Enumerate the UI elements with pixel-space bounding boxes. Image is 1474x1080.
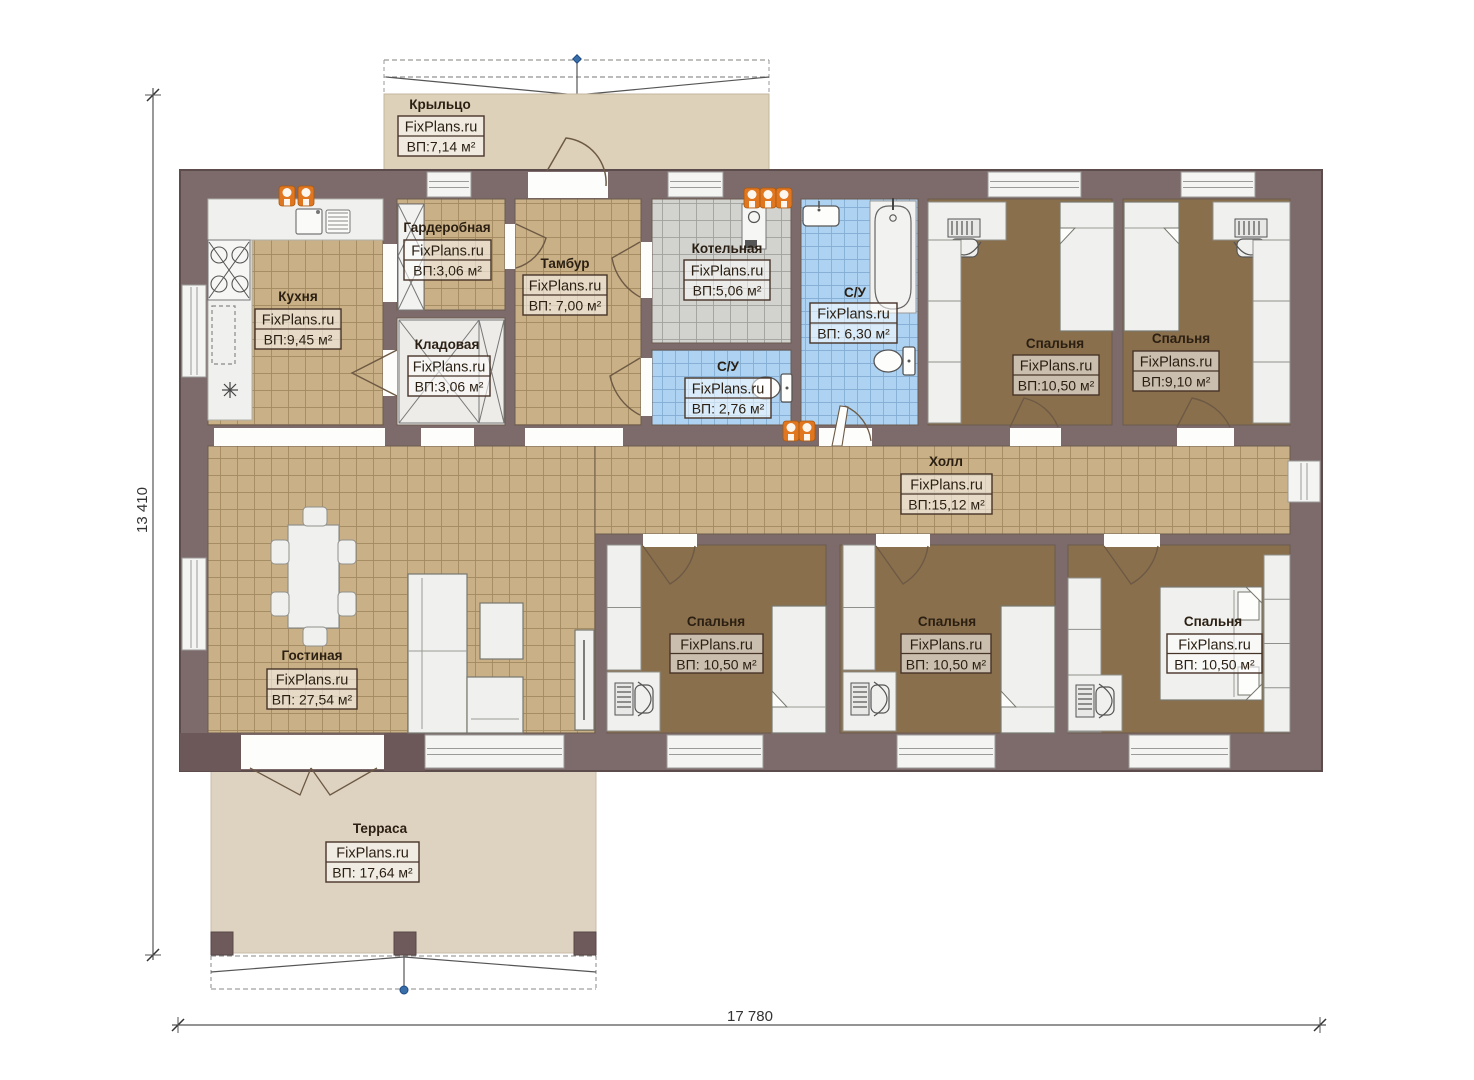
svg-text:FixPlans.ru: FixPlans.ru [692,382,765,398]
svg-text:ВП:9,10 м²: ВП:9,10 м² [1142,374,1211,390]
svg-text:FixPlans.ru: FixPlans.ru [529,279,602,295]
svg-text:FixPlans.ru: FixPlans.ru [1178,638,1251,654]
svg-text:FixPlans.ru: FixPlans.ru [262,313,335,329]
svg-text:С/У: С/У [717,359,740,374]
svg-text:Гостиная: Гостиная [281,648,342,663]
svg-text:ВП: 6,30 м²: ВП: 6,30 м² [817,326,890,342]
svg-text:FixPlans.ru: FixPlans.ru [1020,359,1093,375]
svg-text:FixPlans.ru: FixPlans.ru [405,120,478,136]
svg-text:FixPlans.ru: FixPlans.ru [680,638,753,654]
svg-text:FixPlans.ru: FixPlans.ru [817,307,890,323]
svg-text:ВП:3,06 м²: ВП:3,06 м² [413,263,482,279]
svg-text:FixPlans.ru: FixPlans.ru [691,264,764,280]
svg-text:FixPlans.ru: FixPlans.ru [1140,355,1213,371]
svg-text:ВП:5,06 м²: ВП:5,06 м² [693,283,762,299]
svg-text:ВП: 17,64 м²: ВП: 17,64 м² [332,865,413,881]
svg-text:ВП: 10,50 м²: ВП: 10,50 м² [906,657,987,673]
svg-text:ВП:10,50 м²: ВП:10,50 м² [1018,378,1095,394]
svg-text:ВП: 10,50 м²: ВП: 10,50 м² [1174,657,1255,673]
svg-text:FixPlans.ru: FixPlans.ru [910,478,983,494]
svg-text:С/У: С/У [844,285,867,300]
svg-text:Крыльцо: Крыльцо [409,97,470,112]
svg-text:FixPlans.ru: FixPlans.ru [910,638,983,654]
svg-text:Тамбур: Тамбур [541,256,590,271]
svg-text:FixPlans.ru: FixPlans.ru [336,846,409,862]
svg-text:Холл: Холл [929,454,963,469]
svg-text:Кухня: Кухня [278,289,317,304]
svg-text:Спальня: Спальня [1026,336,1084,351]
svg-text:Кладовая: Кладовая [415,337,480,352]
svg-text:ВП: 10,50 м²: ВП: 10,50 м² [676,657,757,673]
svg-text:ВП:3,06 м²: ВП:3,06 м² [415,379,484,395]
svg-text:ВП:9,45 м²: ВП:9,45 м² [264,332,333,348]
svg-text:FixPlans.ru: FixPlans.ru [411,244,484,260]
svg-text:ВП:15,12 м²: ВП:15,12 м² [908,497,985,513]
svg-text:Спальня: Спальня [1152,331,1210,346]
svg-text:13 410: 13 410 [134,487,151,533]
svg-text:Терраса: Терраса [353,821,408,836]
svg-text:Котельная: Котельная [692,241,763,256]
svg-text:17 780: 17 780 [727,1008,773,1025]
svg-text:ВП: 27,54 м²: ВП: 27,54 м² [272,692,353,708]
svg-text:ВП:7,14 м²: ВП:7,14 м² [407,139,476,155]
svg-text:FixPlans.ru: FixPlans.ru [276,673,349,689]
svg-text:Спальня: Спальня [918,614,976,629]
svg-text:Гардеробная: Гардеробная [403,220,490,235]
svg-text:Спальня: Спальня [687,614,745,629]
svg-text:Спальня: Спальня [1184,614,1242,629]
svg-text:ВП: 2,76 м²: ВП: 2,76 м² [692,401,765,417]
svg-text:ВП: 7,00 м²: ВП: 7,00 м² [529,298,602,314]
svg-text:FixPlans.ru: FixPlans.ru [413,360,486,376]
